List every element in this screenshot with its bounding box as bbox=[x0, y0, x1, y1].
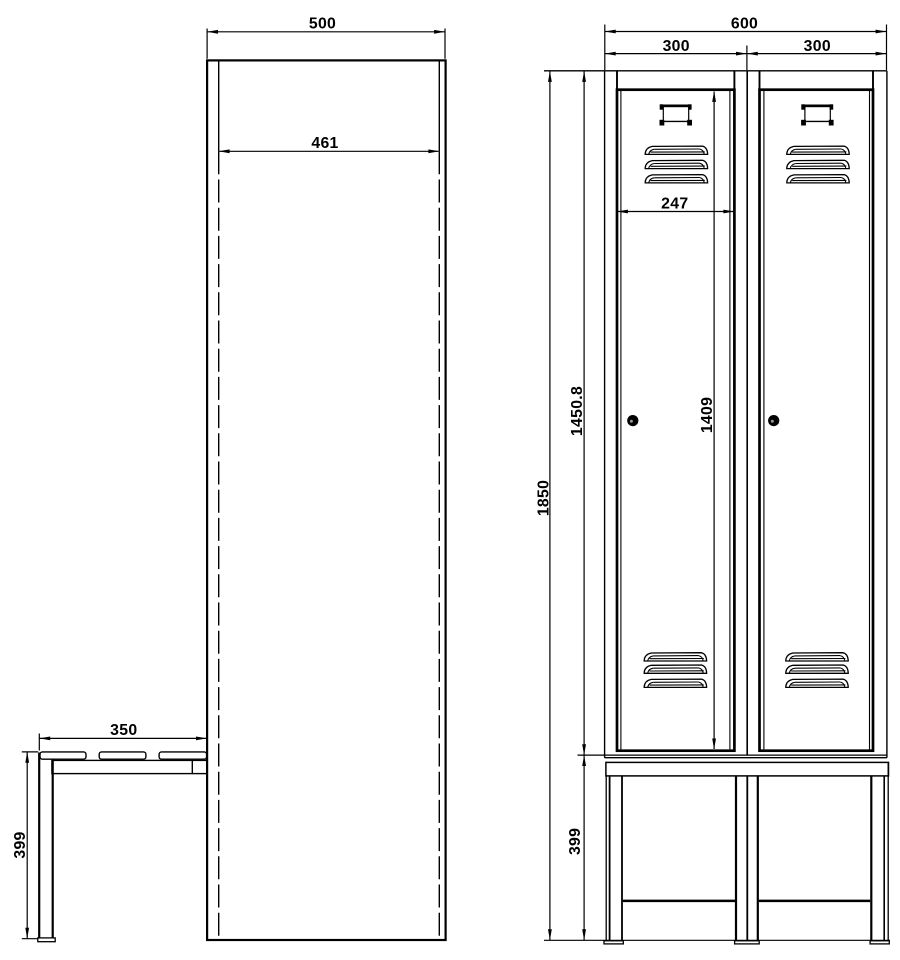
svg-text:1450.8: 1450.8 bbox=[569, 386, 586, 436]
svg-text:399: 399 bbox=[12, 831, 29, 858]
svg-text:399: 399 bbox=[567, 828, 584, 855]
svg-text:300: 300 bbox=[804, 38, 831, 55]
svg-text:1409: 1409 bbox=[699, 397, 716, 433]
svg-text:350: 350 bbox=[110, 722, 137, 739]
svg-text:247: 247 bbox=[661, 196, 688, 213]
svg-text:1850: 1850 bbox=[535, 480, 552, 516]
svg-text:300: 300 bbox=[663, 38, 690, 55]
svg-text:461: 461 bbox=[311, 135, 338, 152]
svg-text:500: 500 bbox=[309, 15, 336, 32]
svg-text:600: 600 bbox=[731, 16, 758, 33]
